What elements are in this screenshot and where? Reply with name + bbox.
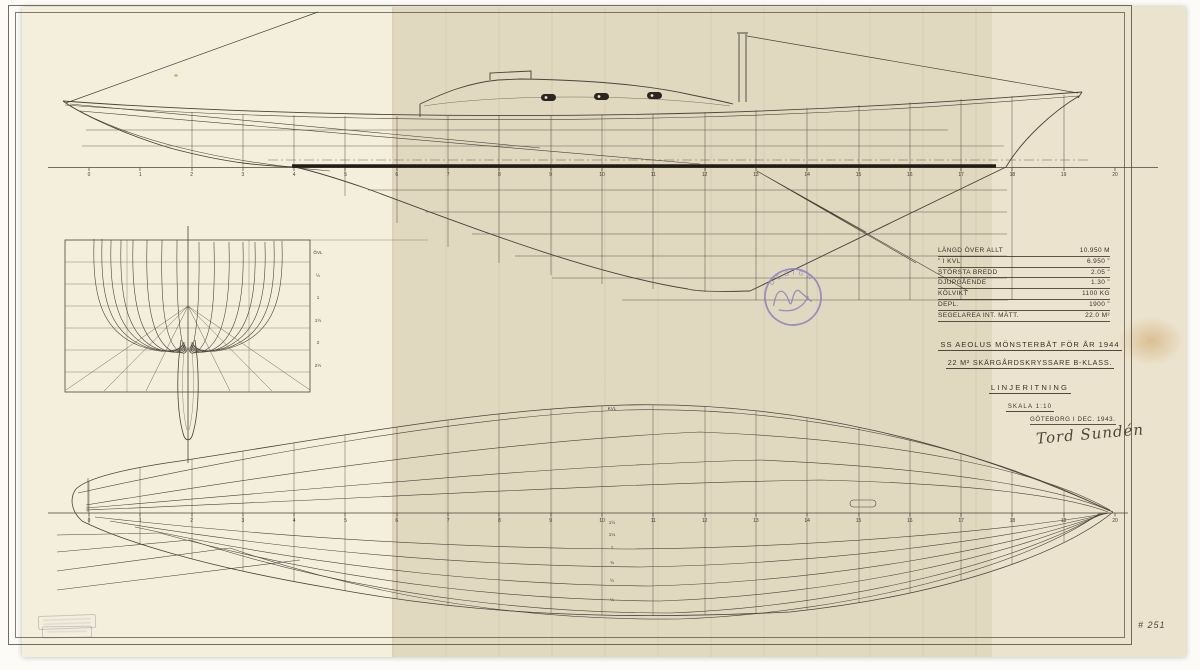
axis-label: 18 xyxy=(1010,172,1016,178)
table-row: ” I KVL6.950 ” xyxy=(938,257,1110,268)
dimensions-table: LÄNGD ÖVER ALLT10.950 M ” I KVL6.950 ” S… xyxy=(938,246,1110,322)
axis-label: 15 xyxy=(856,172,862,178)
half-breadth-view xyxy=(48,400,1128,624)
axis-label: 17 xyxy=(958,518,964,524)
axis-label: 20 xyxy=(1112,172,1118,178)
drawing-title: SS AEOLUS MÖNSTERBÅT FÖR ÅR 1944 xyxy=(938,340,1121,351)
axis-label: 4 xyxy=(293,518,296,524)
axis-label: 16 xyxy=(907,518,913,524)
table-row: STÖRSTA BREDD2.05 ” xyxy=(938,268,1110,279)
axis-label: 18 xyxy=(1010,518,1016,524)
axis-label: 14 xyxy=(804,518,810,524)
scanned-lines-drawing: { "title_block": { "line1": "SS AEOLUS M… xyxy=(0,0,1200,670)
plan-axis-ticks xyxy=(89,513,1115,517)
title-block: SS AEOLUS MÖNSTERBÅT FÖR ÅR 1944 22 M² S… xyxy=(918,334,1142,413)
axis-label: KVL xyxy=(608,406,617,411)
axis-label: 13 xyxy=(753,518,759,524)
axis-label: 2½ xyxy=(315,363,321,368)
axis-label: 0 xyxy=(88,172,91,178)
axis-label: 9 xyxy=(549,518,552,524)
axis-label: 6 xyxy=(395,172,398,178)
axis-label: 8 xyxy=(498,172,501,178)
table-row: DEPL.1900 ” xyxy=(938,300,1110,311)
axis-label: 8 xyxy=(498,518,501,524)
axis-label: 6 xyxy=(395,518,398,524)
profile-axis-ticks xyxy=(89,168,1115,172)
axis-label: 1 xyxy=(611,545,614,550)
axis-label: 2 xyxy=(190,518,193,524)
drawing-type-label: LINJERITNING xyxy=(989,383,1071,394)
axis-label: 1½ xyxy=(315,318,321,323)
sheet-number: # 251 xyxy=(1138,620,1166,630)
drawing-subtitle: 22 M² SKÄRGÅRDSKRYSSARE B-KLASS. xyxy=(946,358,1114,369)
axis-label: 15 xyxy=(856,518,862,524)
axis-label: 9 xyxy=(549,172,552,178)
porthole-icons xyxy=(541,92,662,101)
table-row: SEGELAREA INT. MÄTT.22.0 M² xyxy=(938,311,1110,322)
scale-label: SKALA 1:10 xyxy=(1006,404,1054,412)
axis-label: 1 xyxy=(317,295,320,300)
axis-label: 13 xyxy=(753,172,759,178)
table-row: DJUPGÅENDE1.30 ” xyxy=(938,278,1110,289)
table-row: LÄNGD ÖVER ALLT10.950 M xyxy=(938,246,1110,257)
axis-label: 1½ xyxy=(609,520,615,525)
axis-label: 10 xyxy=(599,172,605,178)
axis-label: 5 xyxy=(344,518,347,524)
axis-label: 10 xyxy=(599,518,605,524)
axis-label: ¾ xyxy=(610,560,614,565)
axis-label: 7 xyxy=(447,518,450,524)
axis-label: 14 xyxy=(804,172,810,178)
axis-label: ½ xyxy=(316,273,320,278)
axis-label: 17 xyxy=(958,172,964,178)
axis-label: ¼ xyxy=(610,597,614,602)
axis-label: ÖVL xyxy=(313,250,322,255)
axis-label: 1 xyxy=(139,172,142,178)
axis-label: 3 xyxy=(242,518,245,524)
axis-label: 11 xyxy=(651,172,656,178)
axis-label: 1 xyxy=(139,518,142,524)
archive-stamp-number xyxy=(42,626,92,639)
axis-label: 19 xyxy=(1061,172,1067,178)
axis-label: 16 xyxy=(907,172,913,178)
axis-label: 20 xyxy=(1112,518,1118,524)
axis-label: 2 xyxy=(317,340,320,345)
body-plan-view xyxy=(65,226,428,463)
axis-label: ½ xyxy=(610,578,614,583)
axis-label: 0 xyxy=(88,518,91,524)
axis-label: 19 xyxy=(1061,518,1067,524)
axis-label: 1¼ xyxy=(609,532,615,537)
axis-label: 3 xyxy=(242,172,245,178)
axis-label: 12 xyxy=(702,518,708,524)
axis-label: 7 xyxy=(447,172,450,178)
axis-label: 11 xyxy=(651,518,656,524)
axis-label: 2 xyxy=(190,172,193,178)
deck-hatch-plan xyxy=(850,500,876,507)
axis-label: 5 xyxy=(344,172,347,178)
axis-label: 4 xyxy=(293,172,296,178)
design-stamp: DESIGN xyxy=(759,263,827,331)
axis-label: 12 xyxy=(702,172,708,178)
table-row: KÖLVIKT1100 KG xyxy=(938,289,1110,300)
